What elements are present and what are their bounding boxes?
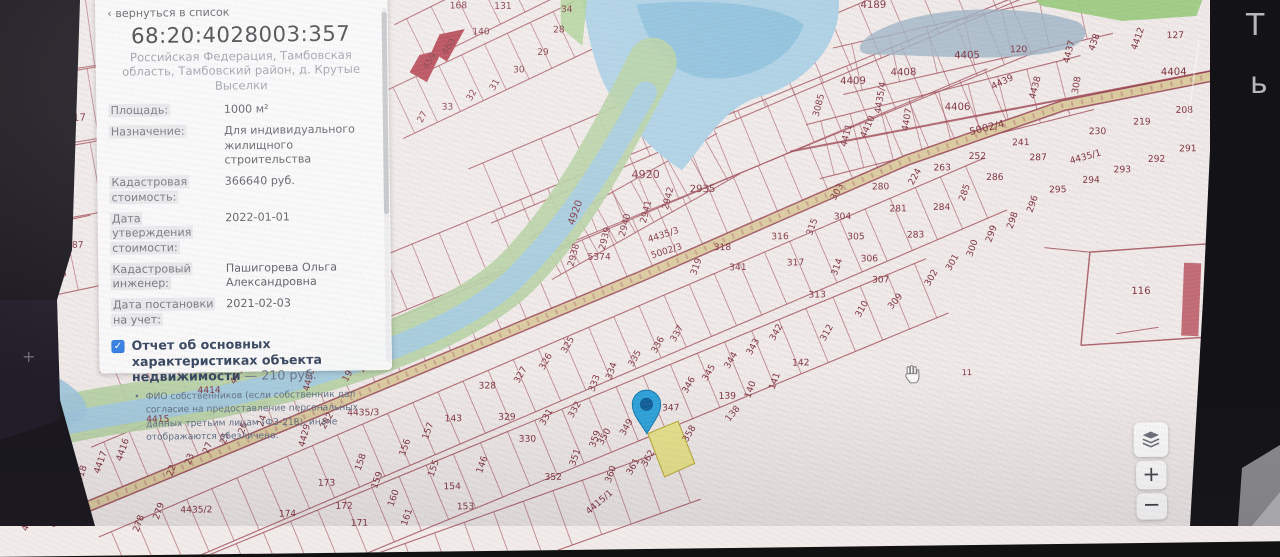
watermark-letter: Т xyxy=(1246,8,1264,43)
watermark-letter: ь xyxy=(1250,66,1268,101)
svg-text:+: + xyxy=(22,347,35,366)
monitor-bezel: + xyxy=(0,0,1280,526)
